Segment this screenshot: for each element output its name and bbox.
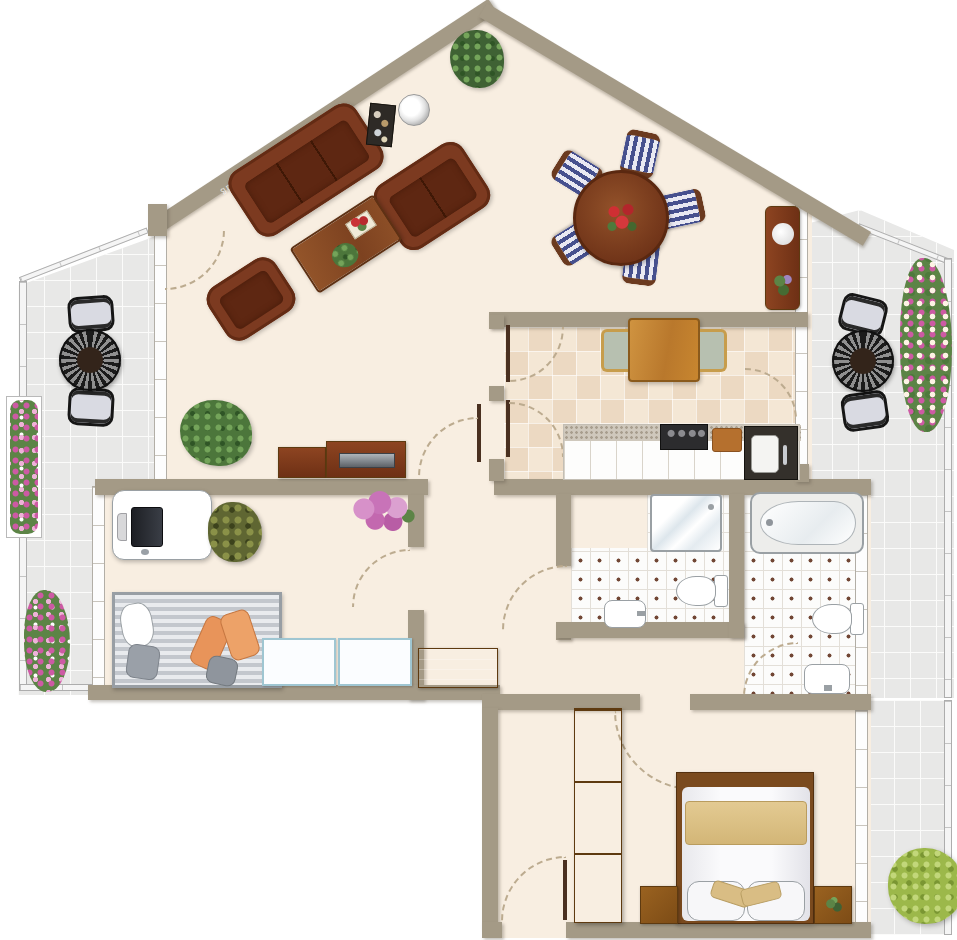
wall-kitchen-left-a: [489, 315, 504, 329]
flowers-left-bottom: [24, 590, 70, 692]
nightstand-left: [640, 886, 678, 924]
tv-sideboard-large: [326, 441, 406, 478]
bistro-table-right: [832, 330, 894, 392]
tv-sideboard-small: [278, 447, 326, 478]
desk-keyboard: [117, 513, 127, 541]
bed-blanket: [685, 801, 807, 845]
office-desk: [112, 490, 212, 560]
nightstand-plant: [823, 895, 845, 917]
planter-box-left: [6, 396, 42, 538]
sink-large-faucet: [824, 685, 832, 691]
toilet-large-bath: [812, 600, 864, 638]
desk-mouse: [141, 549, 149, 555]
toilet-bowl: [676, 576, 716, 606]
kitchen-chair-right: [700, 329, 727, 372]
daybed-cushion-orange-b: [218, 608, 261, 663]
wall-bedroom-bottom-east: [566, 922, 871, 938]
daybed-pillow-gray-b: [204, 654, 239, 688]
sideboard-bowl: [772, 223, 794, 245]
bathtub-faucet: [766, 519, 773, 526]
magazine-rack: [366, 103, 396, 147]
sideboard-plant: [771, 269, 796, 299]
plant-living-left: [180, 400, 252, 466]
daybed-pillow-gray-a: [125, 643, 161, 681]
dining-table: [573, 170, 669, 266]
wall-kitchen-left-c: [489, 459, 504, 481]
wall-between-baths: [729, 494, 744, 638]
desk-monitor: [131, 507, 163, 547]
planter-box-left-flowers: [10, 400, 38, 534]
wall-bedroom-left: [482, 708, 498, 928]
bistro-chair-right-bottom: [840, 389, 891, 433]
window-wall-office-left: [92, 486, 105, 694]
office-cabinet-left: [262, 638, 336, 686]
bistro-table-right-center: [850, 348, 876, 374]
dining-sideboard: [765, 206, 800, 310]
office-cabinet-right: [338, 638, 412, 686]
daybed-pillow-white: [117, 601, 156, 650]
daybed: [112, 592, 282, 688]
toilet-large-bowl: [812, 604, 852, 634]
bistro-chair-left-bottom: [67, 387, 115, 427]
floor-lamp: [398, 94, 430, 126]
nightstand-right: [814, 886, 852, 924]
bush-bottom-right: [888, 848, 957, 924]
floor-plan-canvas: ab.allegrommichnochtzlauß: [0, 0, 957, 940]
toilet-large-tank: [850, 603, 864, 635]
wall-smallbath-left-a: [556, 494, 571, 566]
wall-bedroom-bottom-west: [482, 922, 502, 938]
wall-kitchen-left-b: [489, 386, 504, 401]
kitchen-cutting-board: [712, 428, 742, 452]
kitchen-table: [628, 318, 700, 382]
dining-table-flowers: [602, 197, 642, 239]
tv-screen: [339, 453, 395, 468]
kitchen-sink-unit: [744, 426, 798, 480]
bathtub-basin: [760, 501, 856, 545]
toilet-tank: [714, 575, 728, 607]
bed: [676, 772, 814, 924]
wardrobe: [574, 708, 622, 923]
sink-small-bath: [604, 600, 646, 628]
plant-apex: [450, 30, 504, 88]
shower: [650, 494, 722, 552]
bistro-table-left: [59, 329, 121, 391]
coffee-table-plant: [328, 238, 363, 272]
wall-smallbath-bottom: [556, 622, 744, 638]
kitchen-sink-basin: [751, 435, 779, 473]
bathtub: [750, 492, 864, 554]
bathroom-small-niche: [571, 494, 647, 548]
bistro-chair-left-top: [67, 294, 115, 333]
kitchen-stove: [660, 424, 708, 450]
office-flowers: [352, 490, 418, 532]
kitchen-chair-left: [601, 329, 628, 372]
toilet-small-bath: [676, 572, 728, 610]
sink-small-faucet: [637, 611, 645, 616]
hall-bench: [418, 648, 498, 688]
sink-large-bath: [804, 664, 850, 694]
bistro-table-left-center: [77, 347, 103, 373]
kitchen-faucet: [783, 445, 787, 465]
shower-drain: [708, 504, 714, 510]
window-wall-bedroom-right: [855, 710, 868, 926]
office-chair: [208, 502, 262, 562]
coffee-table-flowers: [345, 208, 374, 237]
